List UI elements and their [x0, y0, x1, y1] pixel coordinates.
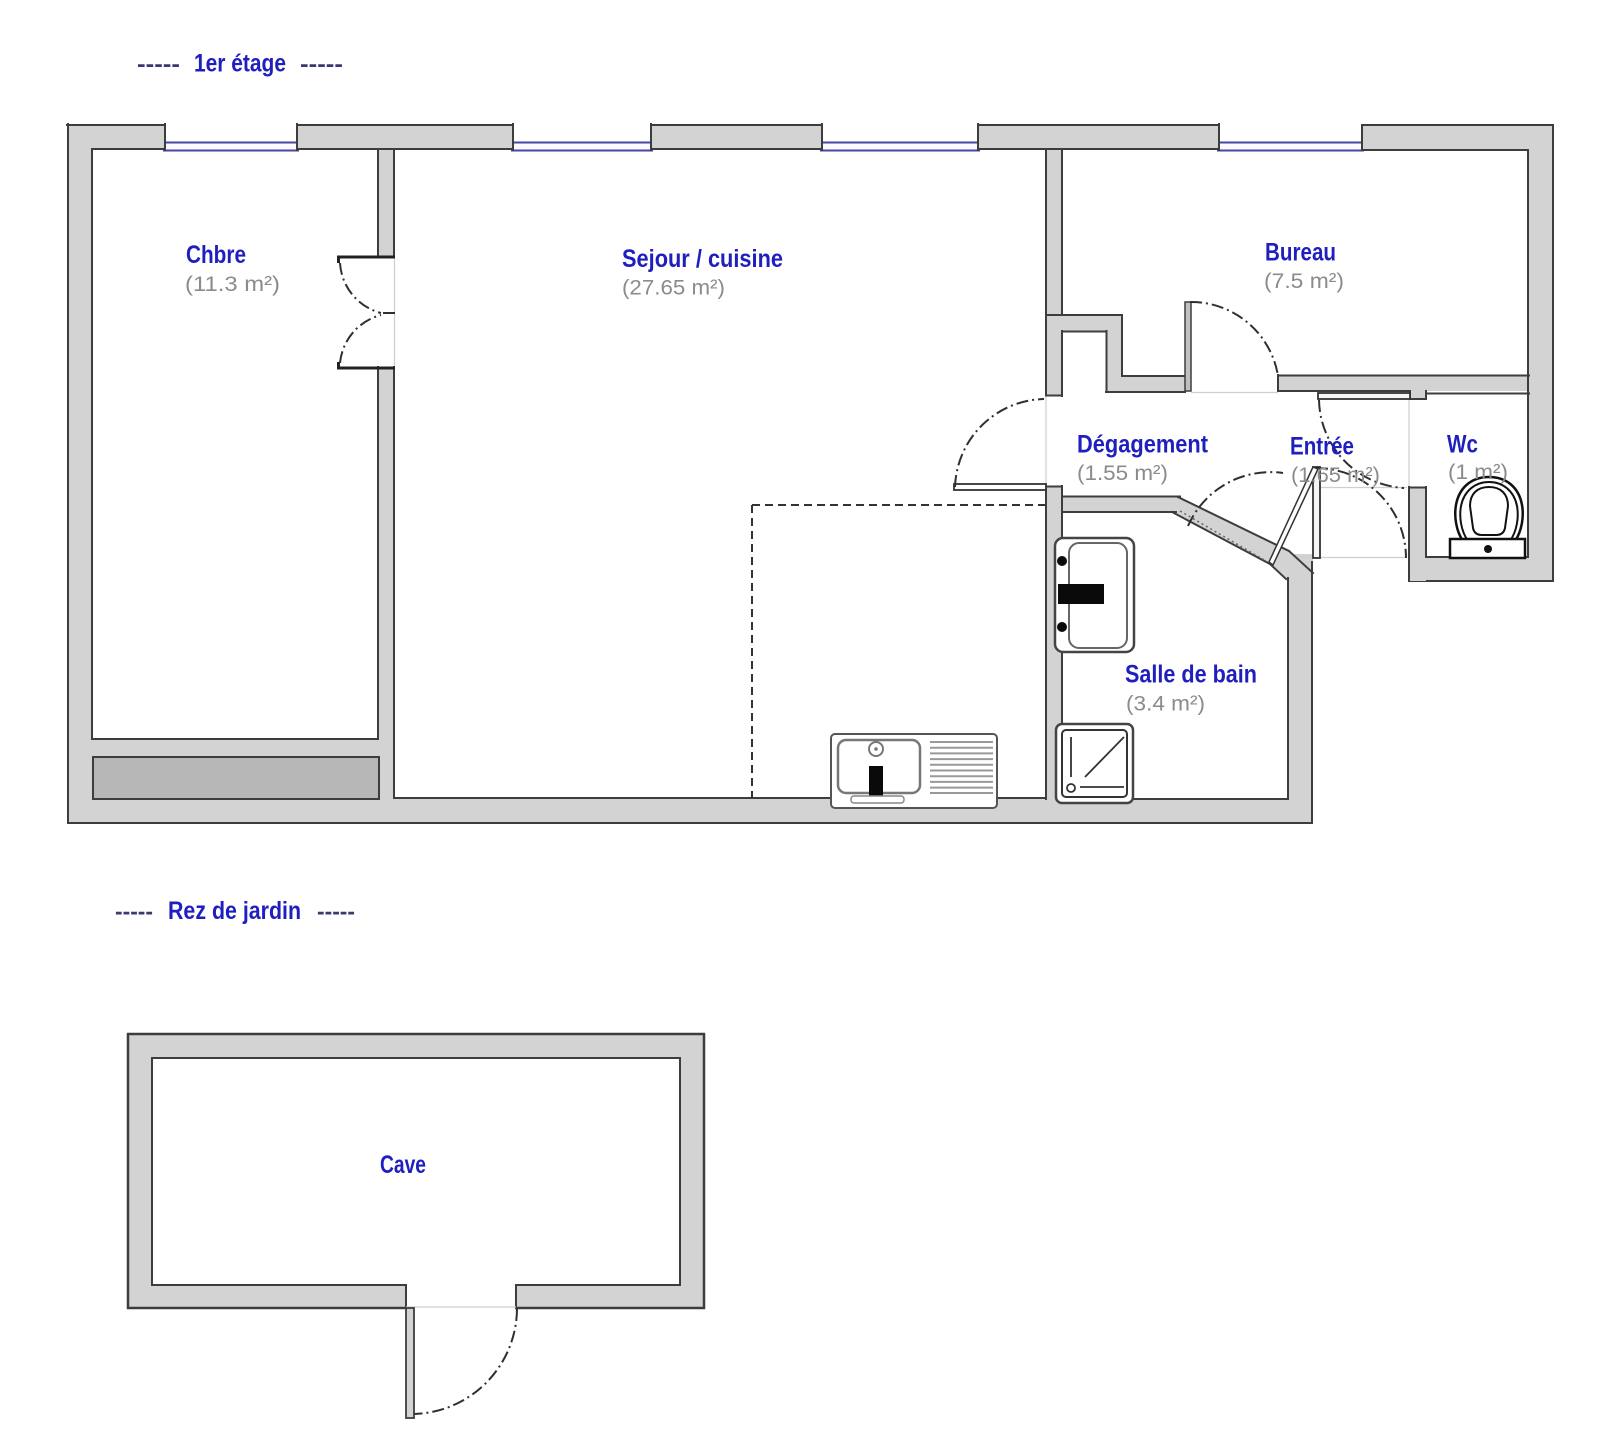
svg-text:-----: ----- [300, 51, 343, 77]
svg-text:(1.65 m²): (1.65 m²) [1291, 464, 1380, 487]
svg-text:-----: ----- [317, 898, 355, 924]
svg-text:1er étage: 1er étage [194, 50, 286, 78]
svg-text:(1 m²): (1 m²) [1448, 461, 1508, 484]
svg-text:Sejour / cuisine: Sejour / cuisine [622, 245, 783, 273]
svg-text:(1.55 m²): (1.55 m²) [1077, 462, 1168, 485]
svg-text:Cave: Cave [380, 1151, 426, 1179]
svg-text:Dégagement: Dégagement [1077, 431, 1209, 459]
svg-text:(27.65 m²): (27.65 m²) [622, 277, 725, 300]
svg-text:(3.4 m²): (3.4 m²) [1126, 693, 1205, 716]
svg-text:(7.5 m²): (7.5 m²) [1264, 270, 1344, 293]
svg-text:Bureau: Bureau [1265, 239, 1336, 267]
svg-text:Entrée: Entrée [1290, 433, 1354, 461]
svg-text:Wc: Wc [1447, 431, 1478, 459]
svg-text:(11.3 m²): (11.3 m²) [185, 273, 280, 296]
svg-text:Chbre: Chbre [186, 241, 246, 269]
svg-text:Salle de bain: Salle de bain [1125, 661, 1257, 689]
svg-text:-----: ----- [115, 898, 153, 924]
svg-text:-----: ----- [137, 51, 180, 77]
svg-text:Rez de jardin: Rez de jardin [168, 897, 301, 925]
